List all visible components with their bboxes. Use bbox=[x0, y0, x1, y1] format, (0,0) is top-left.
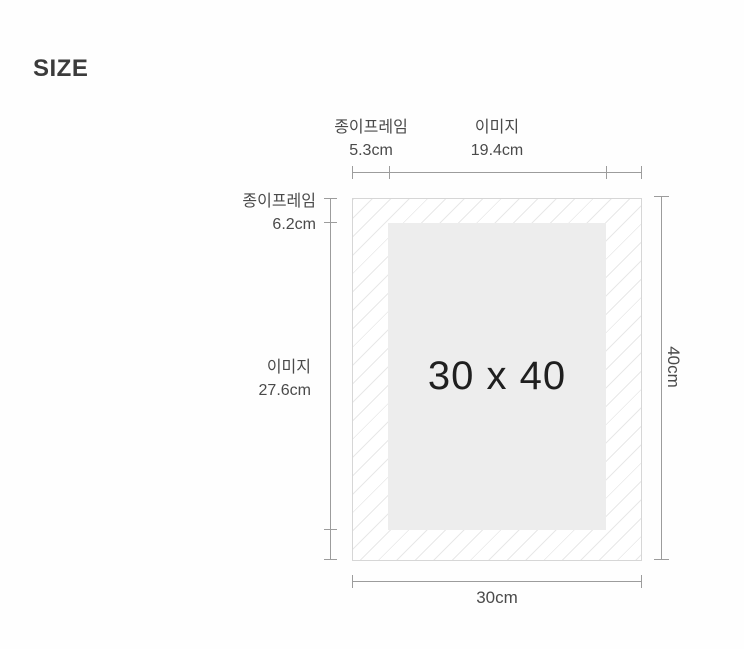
bottom-measure-tick-left bbox=[352, 575, 353, 588]
left-measure-tick-paper-image-boundary bbox=[324, 222, 337, 223]
left-measure-tick-image-paper-boundary bbox=[324, 529, 337, 530]
right-measure-tick-top bbox=[654, 196, 669, 197]
bottom-width-value: 30cm bbox=[352, 588, 642, 608]
left-measure-tick-bottom bbox=[324, 559, 337, 560]
top-image-name: 이미지 bbox=[475, 119, 519, 136]
top-image-dimension-label: 이미지 19.4cm bbox=[447, 116, 547, 162]
left-image-value: 27.6cm bbox=[161, 379, 311, 402]
top-measure-tick-left bbox=[352, 166, 353, 179]
right-measure-tick-bottom bbox=[654, 559, 669, 560]
image-area: 30 x 40 bbox=[388, 223, 606, 530]
paper-frame-hatched-area: 30 x 40 bbox=[352, 198, 642, 561]
page-title: SIZE bbox=[33, 55, 88, 83]
size-dimensions-text: 30 x 40 bbox=[428, 354, 566, 399]
bottom-measure-line bbox=[352, 581, 642, 582]
top-measure-tick-right bbox=[641, 166, 642, 179]
right-measure-line bbox=[661, 196, 662, 560]
left-image-dimension-label: 이미지 27.6cm bbox=[161, 356, 311, 402]
top-paper-frame-dimension-label: 종이프레임 5.3cm bbox=[321, 116, 421, 162]
top-measure-tick-image-paper-boundary bbox=[606, 166, 607, 179]
left-measure-line bbox=[330, 198, 331, 560]
top-paper-frame-name: 종이프레임 bbox=[334, 119, 408, 136]
top-paper-frame-value: 5.3cm bbox=[321, 139, 421, 162]
top-image-value: 19.4cm bbox=[447, 139, 547, 162]
size-diagram-page: SIZE 종이프레임 5.3cm 이미지 19.4cm 종이프레임 6.2cm … bbox=[0, 0, 744, 649]
right-height-value: 40cm bbox=[663, 341, 683, 393]
top-measure-line bbox=[352, 172, 642, 173]
left-image-name: 이미지 bbox=[267, 359, 311, 376]
left-paper-frame-name: 종이프레임 bbox=[242, 193, 316, 210]
left-measure-tick-top bbox=[324, 198, 337, 199]
left-paper-frame-dimension-label: 종이프레임 6.2cm bbox=[156, 190, 316, 236]
bottom-measure-tick-right bbox=[641, 575, 642, 588]
top-measure-tick-paper-image-boundary bbox=[389, 166, 390, 179]
left-paper-frame-value: 6.2cm bbox=[156, 213, 316, 236]
